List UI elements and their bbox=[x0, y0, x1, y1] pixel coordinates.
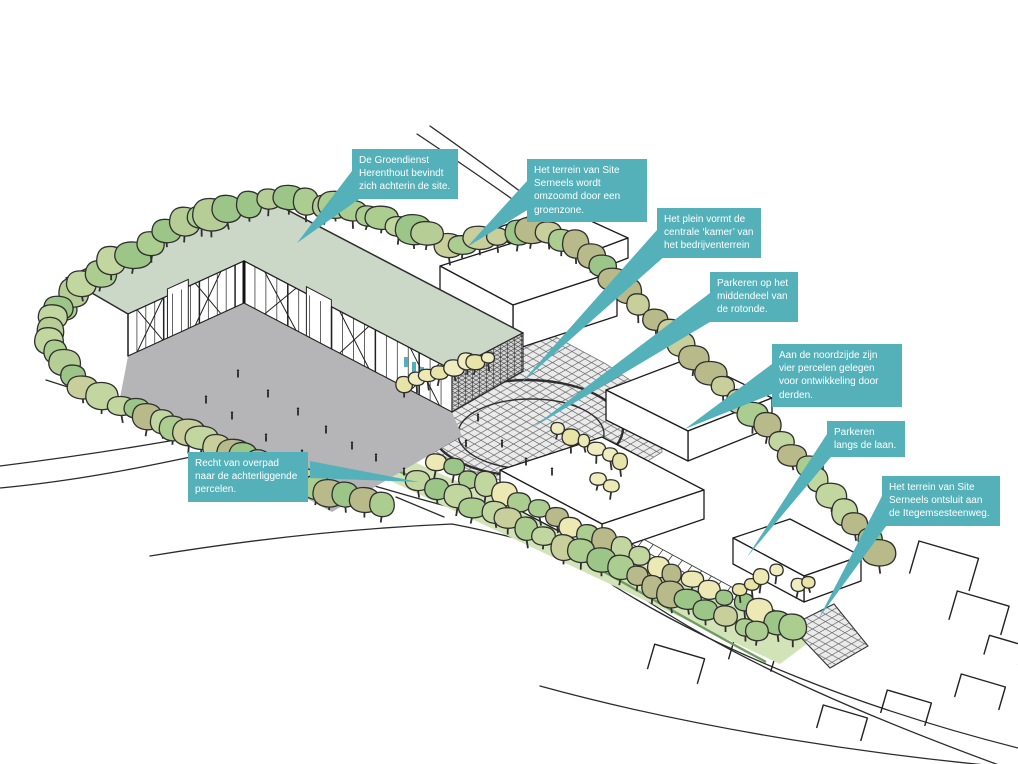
building-footprint bbox=[647, 644, 704, 684]
door-accent bbox=[412, 362, 416, 372]
tree bbox=[370, 492, 395, 516]
tree bbox=[551, 422, 564, 434]
tree bbox=[779, 614, 807, 640]
tree bbox=[770, 564, 783, 576]
tree bbox=[562, 429, 580, 446]
annotation-label-6: Parkeren langs de laan. bbox=[827, 421, 905, 457]
tree bbox=[411, 222, 444, 246]
annotation-label-5: Aan de noordzijde zijn vier percelen gel… bbox=[772, 344, 902, 407]
building-footprint bbox=[984, 635, 1018, 664]
tree bbox=[603, 480, 619, 492]
building-footprint bbox=[949, 591, 1009, 635]
tree bbox=[753, 569, 769, 585]
annotation-label-4: Parkeren op het middendeel van de rotond… bbox=[710, 272, 798, 322]
annotation-label-8: Recht van overpad naar de achterliggende… bbox=[188, 452, 308, 502]
road-line bbox=[540, 686, 1018, 764]
tree bbox=[612, 453, 627, 469]
building-footprint bbox=[910, 541, 979, 591]
tree bbox=[802, 577, 815, 589]
tree bbox=[481, 352, 494, 363]
door-accent bbox=[404, 357, 408, 367]
tree bbox=[746, 621, 769, 641]
site-plan-diagram: De Groendienst Herenthout bevindt zich a… bbox=[0, 0, 1018, 764]
annotation-label-3: Het plein vormt de centrale ‘kamer’ van … bbox=[657, 208, 761, 258]
annotation-label-7: Het terrein van Site Serneels ontsluit a… bbox=[882, 476, 1000, 526]
building-footprint bbox=[955, 674, 1006, 710]
building-footprint bbox=[881, 690, 932, 726]
tree bbox=[716, 590, 733, 605]
annotation-label-2: Het terrein van Site Serneels wordt omzo… bbox=[527, 159, 647, 222]
annotation-label-1: De Groendienst Herenthout bevindt zich a… bbox=[352, 149, 458, 199]
tree bbox=[714, 606, 738, 626]
